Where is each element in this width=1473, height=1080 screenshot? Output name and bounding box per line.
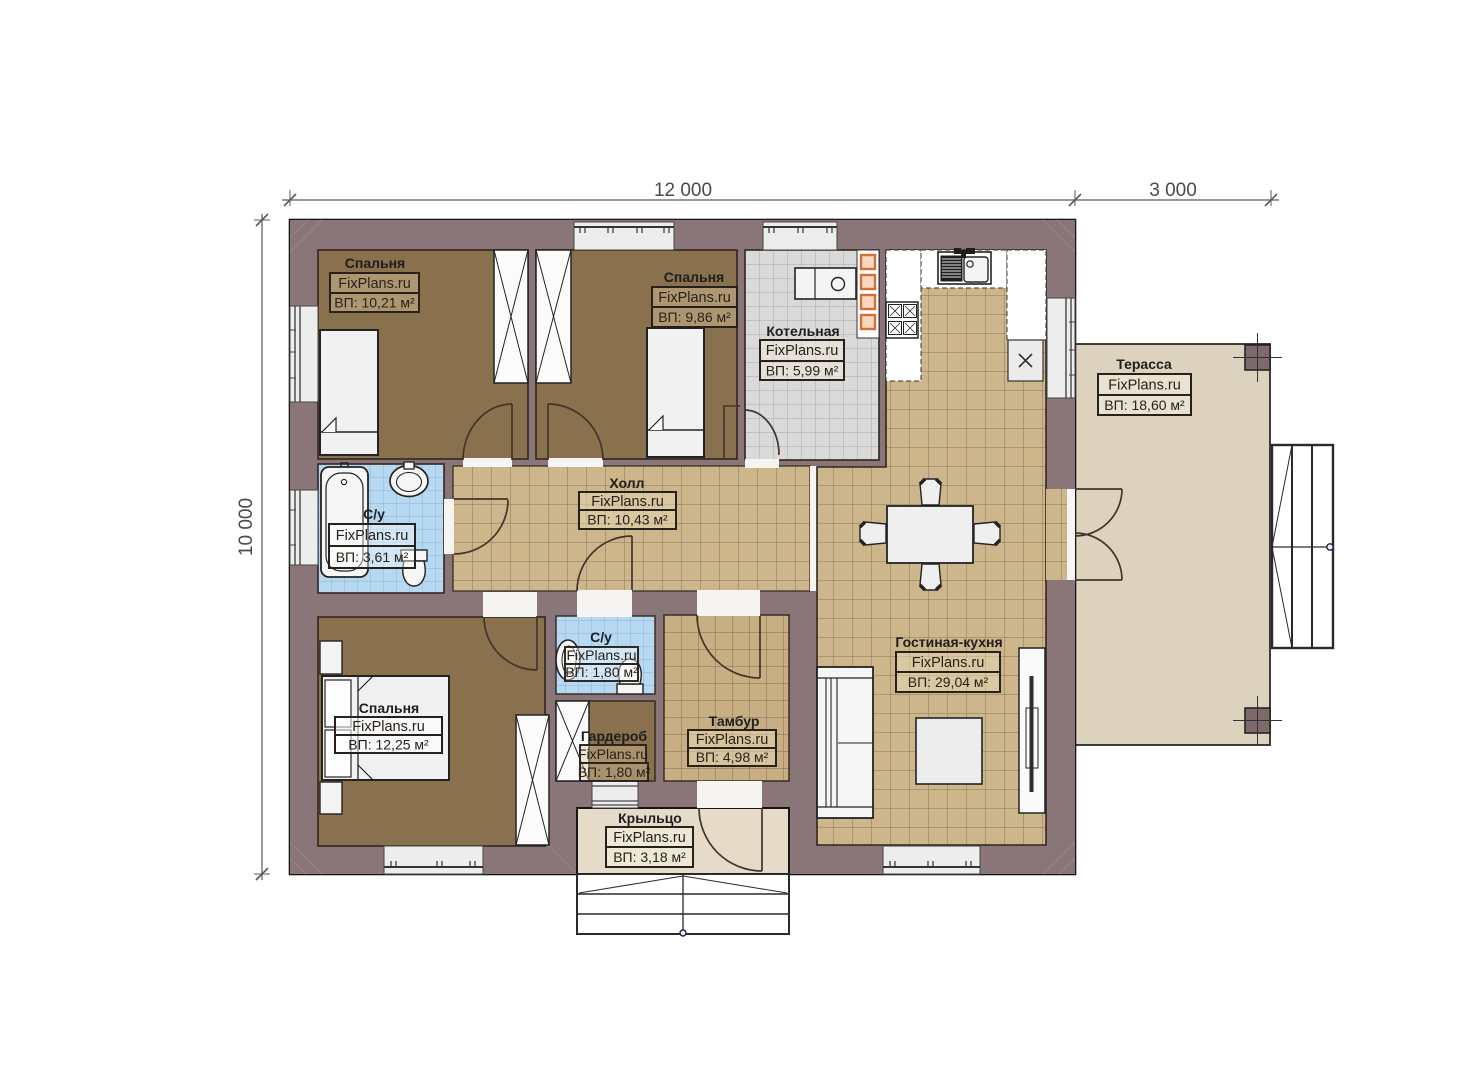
svg-text:FixPlans.ru: FixPlans.ru <box>578 746 648 762</box>
svg-text:ВП: 3,18 м²: ВП: 3,18 м² <box>613 849 686 865</box>
svg-text:ВП: 10,43 м²: ВП: 10,43 м² <box>587 512 668 528</box>
svg-text:ВП: 5,99 м²: ВП: 5,99 м² <box>766 363 839 379</box>
svg-text:Холл: Холл <box>609 475 644 491</box>
svg-text:Котельная: Котельная <box>766 323 839 339</box>
svg-text:Спальня: Спальня <box>345 255 405 271</box>
svg-text:С/у: С/у <box>363 506 385 522</box>
svg-text:FixPlans.ru: FixPlans.ru <box>336 528 409 544</box>
svg-text:FixPlans.ru: FixPlans.ru <box>912 655 985 671</box>
svg-text:FixPlans.ru: FixPlans.ru <box>658 290 731 306</box>
svg-text:ВП: 9,86 м²: ВП: 9,86 м² <box>658 309 731 325</box>
svg-text:Спальня: Спальня <box>664 269 724 285</box>
svg-text:ВП: 1,80 м²: ВП: 1,80 м² <box>565 664 638 680</box>
svg-text:ВП: 10,21 м²: ВП: 10,21 м² <box>334 295 415 311</box>
svg-text:Терасса: Терасса <box>1116 356 1172 372</box>
svg-text:ВП: 1,80 м²: ВП: 1,80 м² <box>578 764 651 780</box>
svg-text:FixPlans.ru: FixPlans.ru <box>338 276 411 292</box>
svg-text:Тамбур: Тамбур <box>709 713 760 729</box>
svg-text:Спальня: Спальня <box>359 700 419 716</box>
svg-text:FixPlans.ru: FixPlans.ru <box>696 732 769 748</box>
svg-text:ВП: 29,04 м²: ВП: 29,04 м² <box>908 674 989 690</box>
svg-text:FixPlans.ru: FixPlans.ru <box>1108 378 1181 394</box>
svg-text:ВП: 12,25 м²: ВП: 12,25 м² <box>348 737 429 753</box>
svg-text:ВП: 3,61 м²: ВП: 3,61 м² <box>336 549 409 565</box>
svg-text:Крыльцо: Крыльцо <box>618 810 682 826</box>
svg-text:FixPlans.ru: FixPlans.ru <box>352 719 425 735</box>
svg-text:FixPlans.ru: FixPlans.ru <box>591 494 664 510</box>
svg-text:Гардероб: Гардероб <box>581 728 648 744</box>
svg-text:Гостиная-кухня: Гостиная-кухня <box>895 634 1002 650</box>
svg-text:FixPlans.ru: FixPlans.ru <box>566 647 636 663</box>
svg-text:FixPlans.ru: FixPlans.ru <box>613 830 686 846</box>
svg-text:FixPlans.ru: FixPlans.ru <box>766 343 839 359</box>
svg-text:3 000: 3 000 <box>1149 180 1197 201</box>
svg-text:12 000: 12 000 <box>654 180 712 201</box>
svg-text:ВП: 18,60 м²: ВП: 18,60 м² <box>1104 397 1185 413</box>
svg-text:С/у: С/у <box>590 629 612 645</box>
svg-text:ВП: 4,98 м²: ВП: 4,98 м² <box>696 749 769 765</box>
svg-text:10 000: 10 000 <box>236 498 257 556</box>
